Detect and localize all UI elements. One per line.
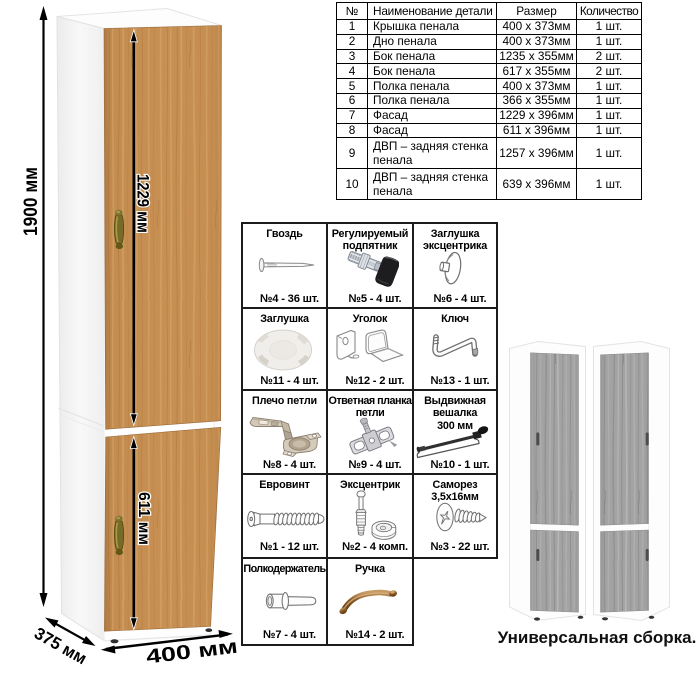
svg-text:375 мм: 375 мм [31,624,90,669]
svg-text:400 мм: 400 мм [145,636,239,669]
svg-text:1900 мм: 1900 мм [21,167,42,236]
svg-text:611 мм: 611 мм [135,492,152,545]
svg-text:1229 мм: 1229 мм [134,174,152,233]
